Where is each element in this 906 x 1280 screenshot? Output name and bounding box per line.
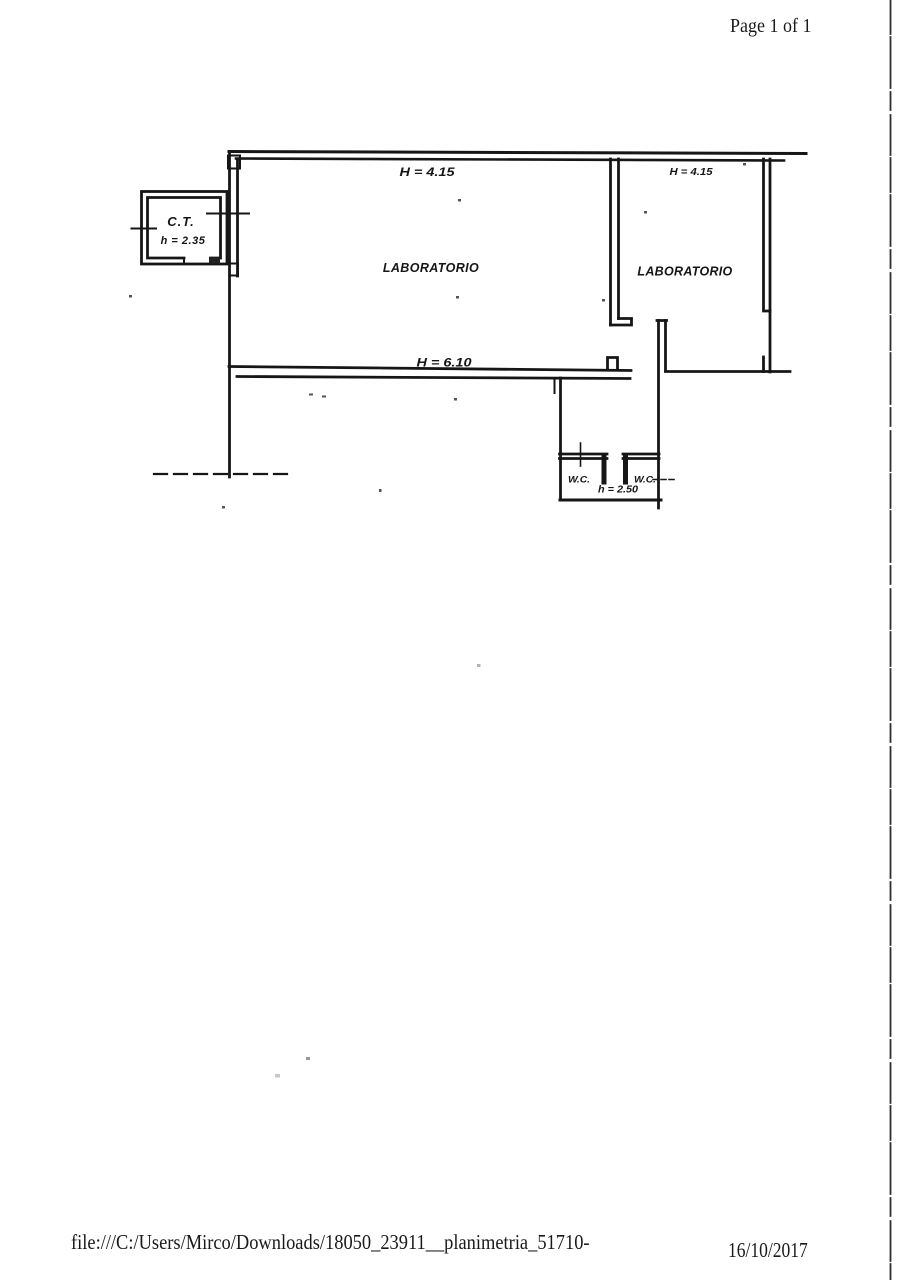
svg-text:h = 2.50: h = 2.50 <box>598 485 638 496</box>
svg-text:h = 2.35: h = 2.35 <box>161 235 206 247</box>
svg-text:LABORATORIO: LABORATORIO <box>637 265 732 279</box>
svg-text:LABORATORIO: LABORATORIO <box>383 261 479 275</box>
svg-text:H = 4.15: H = 4.15 <box>670 166 713 178</box>
svg-text:W.C.: W.C. <box>634 475 656 485</box>
svg-text:C.T.: C.T. <box>167 214 195 229</box>
svg-text:H = 4.15: H = 4.15 <box>400 167 456 179</box>
svg-text:W.C.: W.C. <box>568 475 590 485</box>
svg-text:H = 6.10: H = 6.10 <box>417 358 473 370</box>
